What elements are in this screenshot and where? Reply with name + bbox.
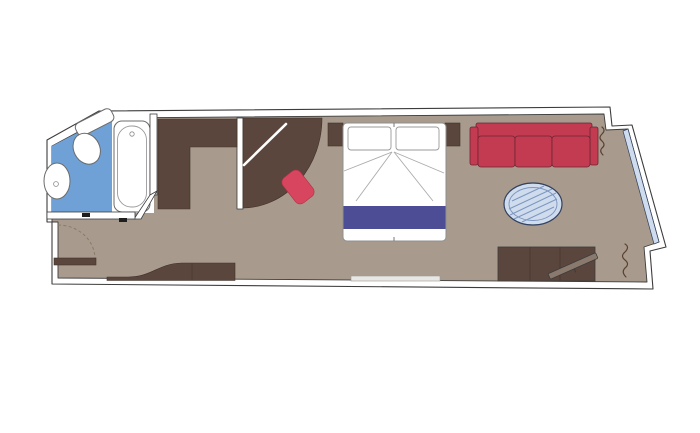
- sofa-cushion-1: [478, 136, 515, 167]
- bathroom-door-mark-1: [82, 213, 90, 217]
- sofa-armrest-right: [590, 127, 598, 165]
- pillow-right: [396, 127, 439, 150]
- bed-runner: [344, 206, 446, 229]
- bathtub-faucet: [130, 132, 134, 136]
- sofa-cushion-2: [515, 136, 552, 167]
- sofa-armrest-left: [470, 127, 478, 165]
- bathroom-wall-right: [150, 114, 157, 195]
- nightstand-left: [328, 123, 343, 146]
- bathroom-door-mark-2: [119, 218, 127, 222]
- threshold: [351, 276, 440, 281]
- coffee-table: [504, 183, 562, 225]
- cabin-floor-plan: [0, 0, 700, 433]
- sink: [44, 163, 70, 199]
- bathroom-wall-bottom: [47, 212, 135, 219]
- sofa-cushion-3: [552, 136, 590, 167]
- sofa: [470, 123, 598, 167]
- sink-drain: [54, 182, 59, 187]
- bathroom: [44, 107, 157, 222]
- double-bed: [343, 123, 446, 241]
- nightstand-right: [445, 123, 460, 146]
- pillow-left: [348, 127, 391, 150]
- tv-cabinet: [498, 247, 600, 283]
- floor-plan-svg: [0, 0, 700, 433]
- wall-divider: [237, 118, 243, 209]
- entrance-door: [54, 258, 96, 265]
